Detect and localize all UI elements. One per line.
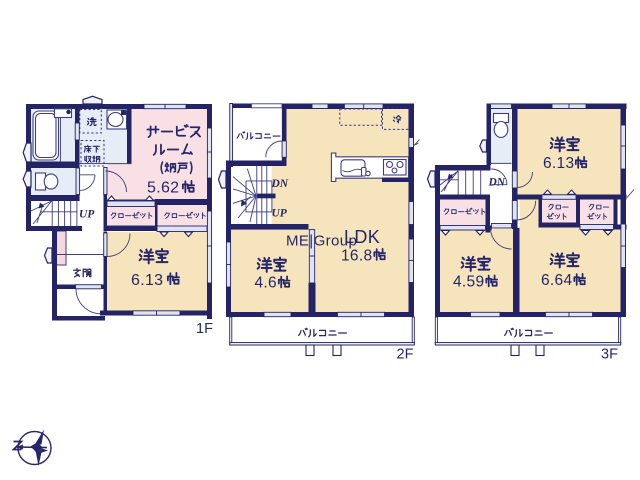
svg-text:4.6: 4.6 <box>255 275 277 292</box>
svg-text:UP: UP <box>272 208 288 220</box>
svg-text:3F: 3F <box>601 347 618 363</box>
svg-text:5.62: 5.62 <box>147 180 179 197</box>
svg-text:1F: 1F <box>196 321 213 337</box>
svg-text:6.64: 6.64 <box>541 272 572 289</box>
svg-text:DN: DN <box>488 177 506 189</box>
svg-text:6.13: 6.13 <box>543 155 574 172</box>
svg-text:DN: DN <box>271 178 289 190</box>
svg-text:6.13: 6.13 <box>131 272 163 289</box>
svg-text:UP: UP <box>79 208 95 220</box>
svg-text:16.8: 16.8 <box>341 248 372 265</box>
svg-text:4.59: 4.59 <box>453 274 484 291</box>
svg-text:ME|Group: ME|Group <box>286 233 357 250</box>
svg-text:2F: 2F <box>397 347 414 363</box>
